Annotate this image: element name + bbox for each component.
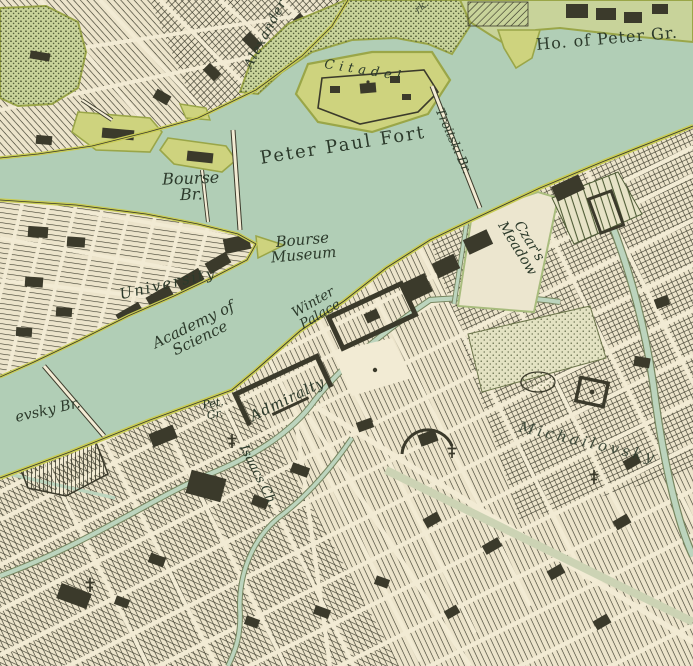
label-line: Br.: [163, 186, 221, 204]
park-island: [0, 6, 86, 106]
fort-cathedral: [360, 82, 377, 93]
map-canvas: [0, 0, 693, 666]
map-label-bourse-bridge: Bourse Br.: [162, 170, 220, 205]
map-viewport[interactable]: Alexander rk. Citadel Peter Paul Fort Tr…: [0, 0, 693, 666]
map-label-bourse-museum: Bourse Museum: [269, 230, 337, 266]
map-label-peter-great-monument: Pet. Gr.: [202, 396, 227, 422]
